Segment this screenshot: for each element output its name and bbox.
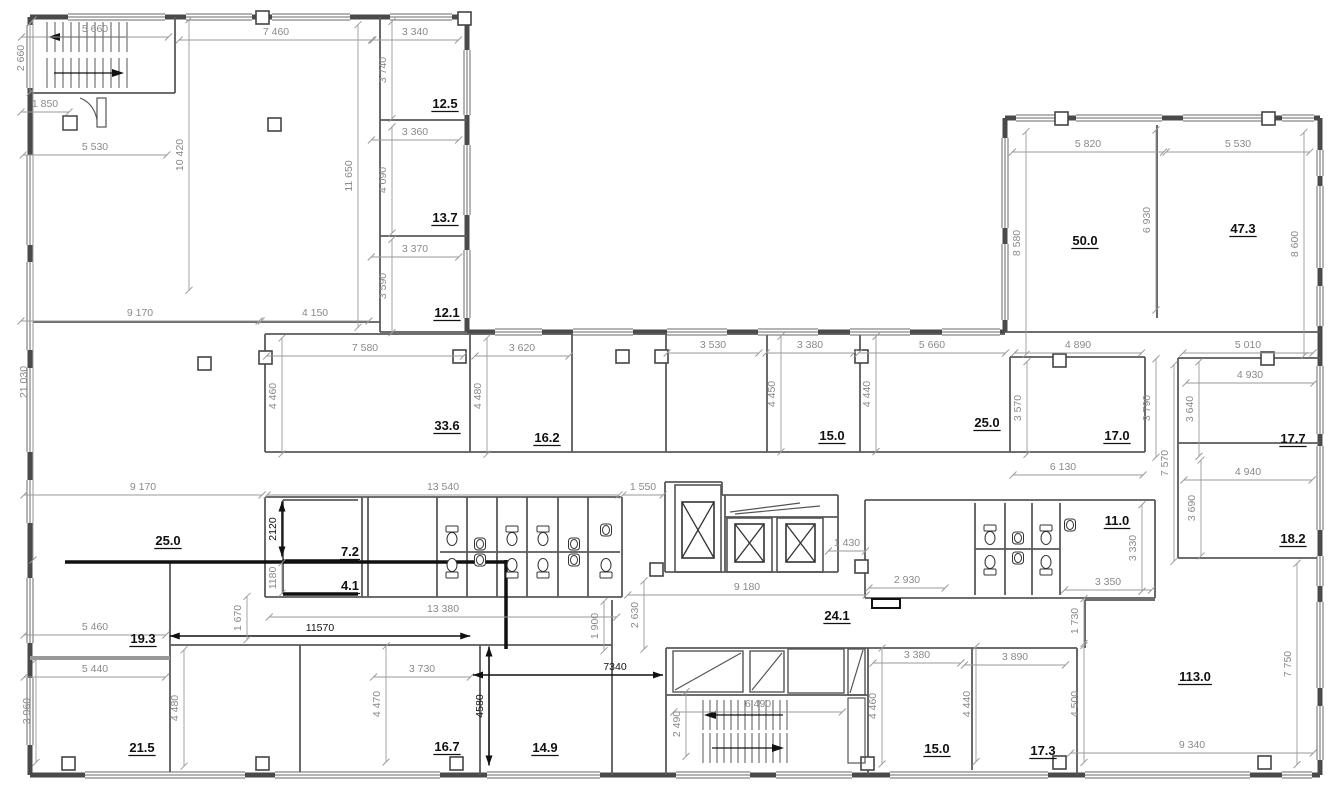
- svg-text:3 640: 3 640: [1184, 396, 1196, 422]
- svg-text:21.5: 21.5: [129, 740, 154, 755]
- svg-text:5 660: 5 660: [919, 339, 945, 351]
- svg-text:21 030: 21 030: [18, 366, 30, 398]
- svg-text:7 460: 7 460: [263, 26, 289, 38]
- svg-text:33.6: 33.6: [434, 418, 459, 433]
- svg-text:4 890: 4 890: [1065, 339, 1091, 351]
- svg-text:1 670: 1 670: [232, 605, 244, 631]
- svg-text:9 180: 9 180: [734, 581, 760, 593]
- svg-text:4 440: 4 440: [961, 691, 973, 717]
- svg-text:7340: 7340: [603, 661, 627, 673]
- elevator-icon: [675, 485, 823, 572]
- svg-text:7 570: 7 570: [1159, 450, 1171, 476]
- svg-text:2 660: 2 660: [15, 45, 27, 71]
- svg-text:9 340: 9 340: [1179, 739, 1205, 751]
- svg-text:2120: 2120: [267, 517, 279, 541]
- svg-text:1 850: 1 850: [32, 98, 58, 110]
- svg-text:13.7: 13.7: [432, 210, 457, 225]
- exterior-walls: [30, 17, 1320, 775]
- svg-text:12.1: 12.1: [434, 305, 459, 320]
- interior-walls: [30, 17, 1320, 775]
- svg-text:4 460: 4 460: [867, 693, 879, 719]
- svg-text:5 440: 5 440: [82, 663, 108, 675]
- svg-text:4 930: 4 930: [1237, 369, 1263, 381]
- svg-text:4 500: 4 500: [1069, 691, 1081, 717]
- svg-text:13 540: 13 540: [427, 481, 459, 493]
- svg-text:12.5: 12.5: [432, 96, 457, 111]
- svg-text:24.1: 24.1: [824, 608, 849, 623]
- svg-text:6 490: 6 490: [745, 698, 771, 710]
- svg-text:50.0: 50.0: [1072, 233, 1097, 248]
- floor-plan-canvas: 5 6607 4603 3401 8505 5303 3603 3705 820…: [0, 0, 1336, 788]
- svg-text:18.2: 18.2: [1280, 531, 1305, 546]
- svg-text:11.0: 11.0: [1105, 513, 1130, 528]
- svg-text:3 340: 3 340: [402, 26, 428, 38]
- svg-text:4 480: 4 480: [169, 695, 181, 721]
- svg-text:3 380: 3 380: [797, 339, 823, 351]
- svg-text:3 330: 3 330: [1127, 535, 1139, 561]
- svg-text:7 580: 7 580: [352, 342, 378, 354]
- svg-text:4 940: 4 940: [1235, 466, 1261, 478]
- columns: [62, 11, 1275, 770]
- svg-text:7 750: 7 750: [1282, 651, 1294, 677]
- svg-text:11570: 11570: [306, 622, 335, 634]
- svg-text:4 090: 4 090: [377, 167, 389, 193]
- svg-text:4580: 4580: [474, 694, 486, 718]
- svg-text:4 470: 4 470: [371, 691, 383, 717]
- svg-text:3 530: 3 530: [700, 339, 726, 351]
- svg-text:5 530: 5 530: [82, 141, 108, 153]
- svg-text:9 170: 9 170: [130, 481, 156, 493]
- svg-text:6 930: 6 930: [1141, 207, 1153, 233]
- svg-text:1 550: 1 550: [630, 481, 656, 493]
- svg-text:25.0: 25.0: [974, 415, 999, 430]
- svg-text:1 730: 1 730: [1069, 608, 1081, 634]
- svg-text:17.0: 17.0: [1104, 428, 1129, 443]
- svg-text:3 350: 3 350: [1095, 576, 1121, 588]
- svg-text:113.0: 113.0: [1179, 669, 1211, 684]
- svg-text:6 130: 6 130: [1050, 461, 1076, 473]
- svg-text:16.2: 16.2: [534, 430, 559, 445]
- svg-text:8 600: 8 600: [1289, 231, 1301, 257]
- svg-text:8 580: 8 580: [1011, 230, 1023, 256]
- svg-text:25.0: 25.0: [155, 533, 180, 548]
- svg-text:2 630: 2 630: [629, 602, 641, 628]
- svg-text:4 440: 4 440: [861, 381, 873, 407]
- svg-text:1180: 1180: [267, 567, 279, 590]
- svg-text:11 650: 11 650: [343, 160, 355, 191]
- svg-text:4 460: 4 460: [267, 383, 279, 409]
- svg-text:3 890: 3 890: [1002, 651, 1028, 663]
- svg-text:2 490: 2 490: [671, 711, 683, 737]
- svg-text:3 690: 3 690: [1186, 495, 1198, 521]
- svg-text:16.7: 16.7: [434, 739, 459, 754]
- svg-text:3 730: 3 730: [409, 663, 435, 675]
- svg-text:4 480: 4 480: [472, 383, 484, 409]
- svg-text:15.0: 15.0: [924, 741, 949, 756]
- svg-text:3 360: 3 360: [402, 126, 428, 138]
- svg-text:13 380: 13 380: [427, 603, 459, 615]
- svg-text:14.9: 14.9: [532, 740, 557, 755]
- svg-text:17.7: 17.7: [1280, 431, 1305, 446]
- svg-text:17.3: 17.3: [1030, 743, 1055, 758]
- svg-text:3 380: 3 380: [904, 649, 930, 661]
- svg-text:5 660: 5 660: [82, 23, 108, 35]
- svg-text:3 370: 3 370: [402, 243, 428, 255]
- svg-text:47.3: 47.3: [1230, 221, 1255, 236]
- svg-text:3 960: 3 960: [21, 698, 33, 724]
- svg-text:3 620: 3 620: [509, 342, 535, 354]
- svg-text:10 420: 10 420: [174, 139, 186, 171]
- svg-text:1 430: 1 430: [834, 537, 860, 549]
- svg-text:1 900: 1 900: [589, 613, 601, 639]
- svg-text:5 530: 5 530: [1225, 138, 1251, 150]
- svg-text:4 150: 4 150: [302, 307, 328, 319]
- svg-text:3 570: 3 570: [1012, 395, 1024, 421]
- svg-text:4.1: 4.1: [341, 578, 359, 593]
- svg-text:4 450: 4 450: [766, 381, 778, 407]
- svg-text:5 820: 5 820: [1075, 138, 1101, 150]
- svg-text:5 010: 5 010: [1235, 339, 1261, 351]
- svg-text:15.0: 15.0: [819, 428, 844, 443]
- svg-text:3 740: 3 740: [377, 57, 389, 83]
- svg-text:3 590: 3 590: [377, 273, 389, 299]
- svg-text:5 460: 5 460: [82, 621, 108, 633]
- svg-text:9 170: 9 170: [127, 307, 153, 319]
- svg-text:19.3: 19.3: [130, 631, 155, 646]
- svg-text:3 790: 3 790: [1141, 395, 1153, 421]
- svg-text:2 930: 2 930: [894, 574, 920, 586]
- windows: [27, 14, 1323, 778]
- room-area-labels: 12.513.712.150.047.333.616.215.025.017.0…: [128, 96, 1306, 759]
- svg-text:7.2: 7.2: [341, 544, 359, 559]
